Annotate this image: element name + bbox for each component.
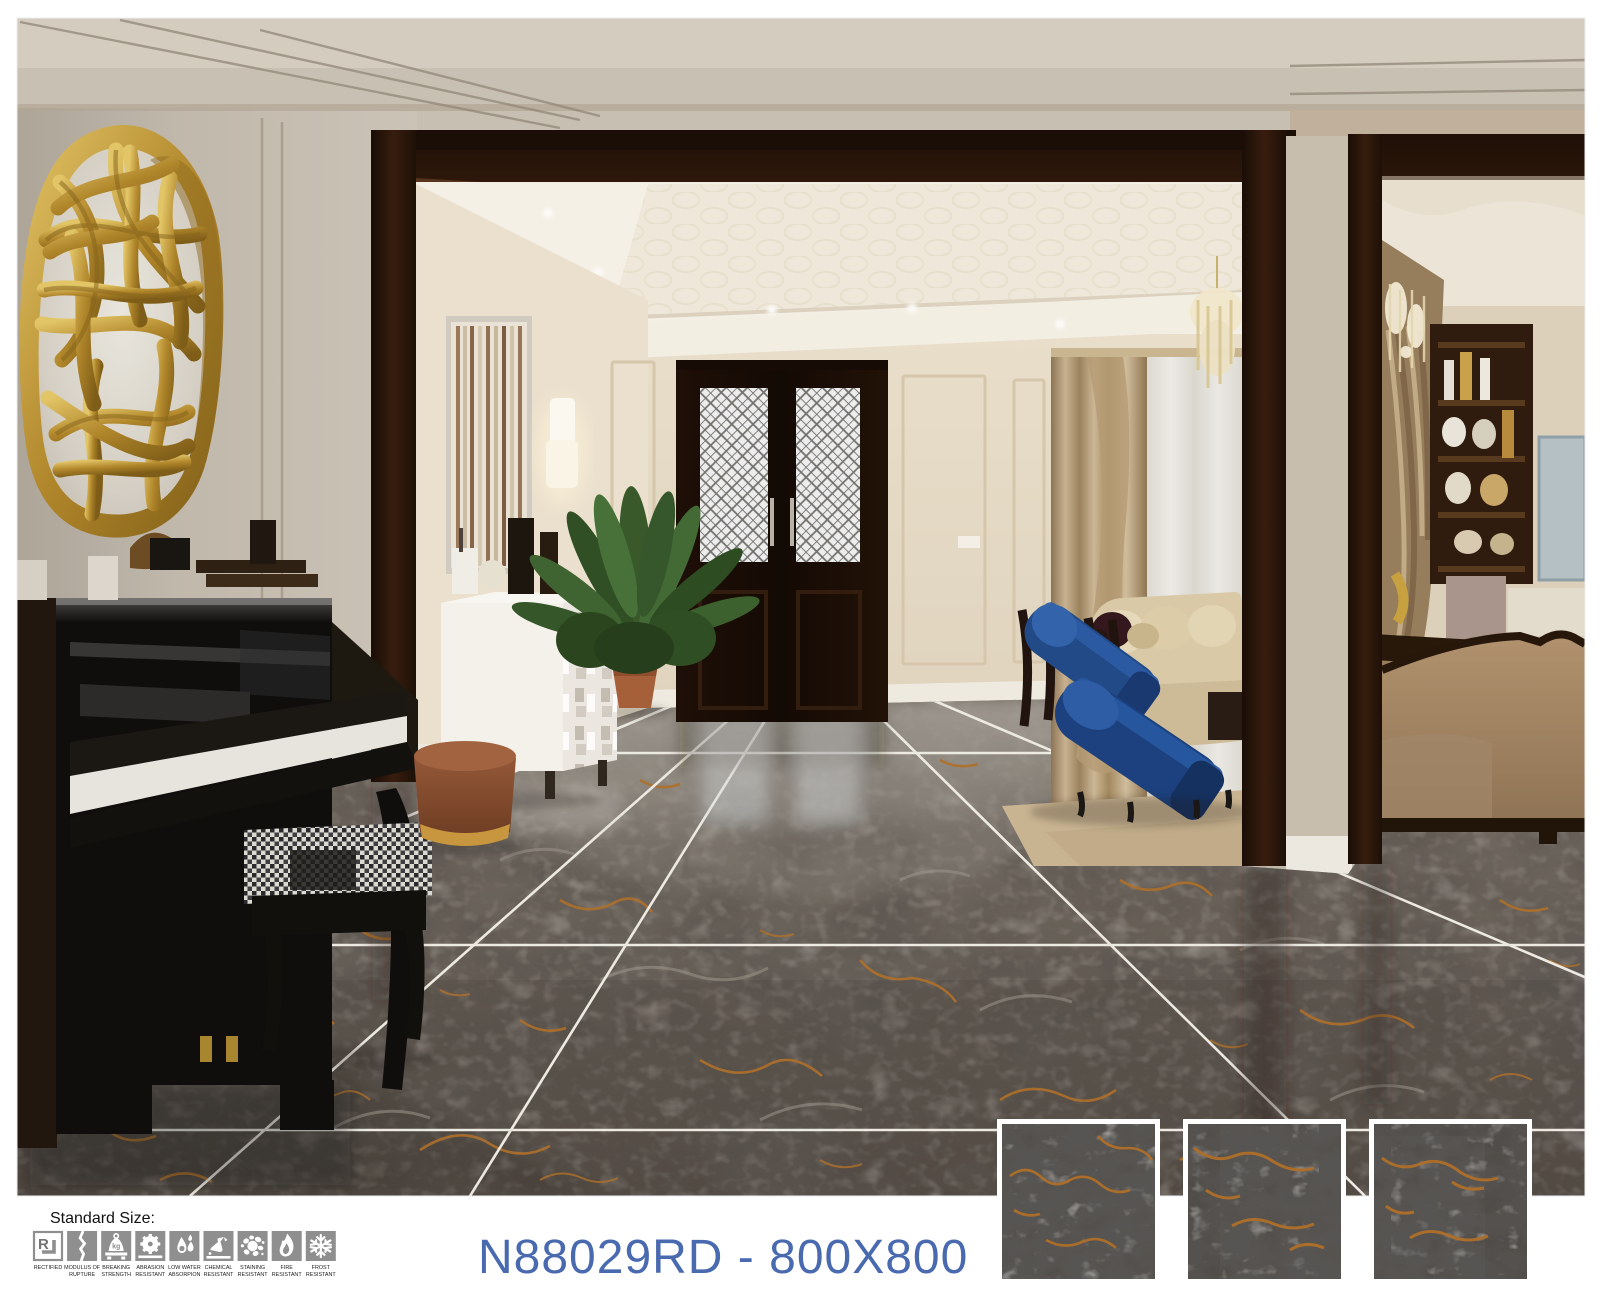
- svg-text:RESISTANT: RESISTANT: [204, 1272, 235, 1278]
- svg-text:CHEMICAL: CHEMICAL: [205, 1265, 233, 1271]
- svg-text:BREAKING: BREAKING: [102, 1265, 130, 1271]
- svg-text:RESISTANT: RESISTANT: [238, 1272, 269, 1278]
- svg-text:Standard Size:: Standard Size:: [50, 1210, 155, 1227]
- svg-text:ABSORPION: ABSORPION: [168, 1272, 200, 1278]
- svg-text:RUPTURE: RUPTURE: [69, 1272, 95, 1278]
- svg-text:STRENGTH: STRENGTH: [101, 1272, 131, 1278]
- svg-text:kg: kg: [112, 1244, 120, 1251]
- svg-text:LOW WATER: LOW WATER: [168, 1265, 201, 1271]
- svg-text:RESISTANT: RESISTANT: [306, 1272, 337, 1278]
- svg-text:RESISTANT: RESISTANT: [135, 1272, 166, 1278]
- svg-text:STAINING: STAINING: [240, 1265, 265, 1271]
- svg-text:ABRASION: ABRASION: [136, 1265, 164, 1271]
- svg-text:MODULUS OF: MODULUS OF: [64, 1265, 101, 1271]
- svg-text:RESISTANT: RESISTANT: [272, 1272, 303, 1278]
- svg-text:FROST: FROST: [312, 1265, 331, 1271]
- svg-text:N88029RD - 800X800: N88029RD - 800X800: [478, 1231, 968, 1284]
- svg-text:RECTIFIED: RECTIFIED: [34, 1265, 63, 1271]
- svg-text:FIRE: FIRE: [281, 1265, 294, 1271]
